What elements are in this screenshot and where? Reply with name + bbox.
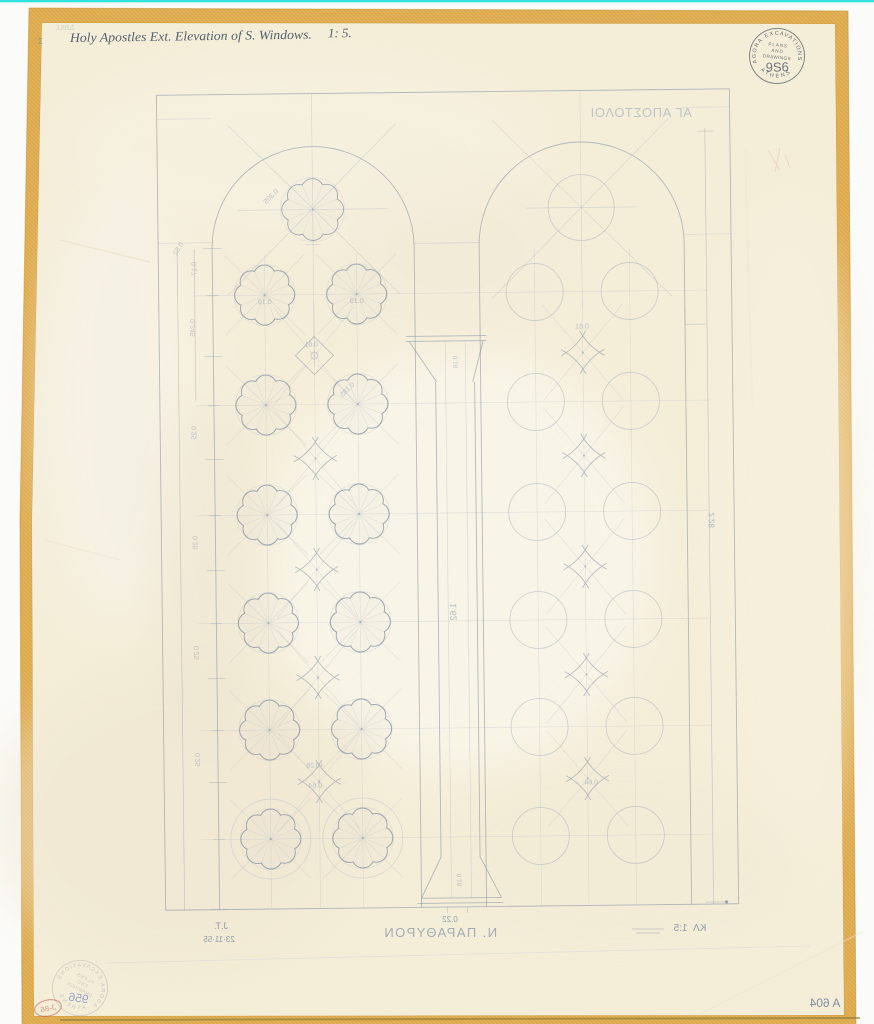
svg-text:0.25: 0.25 bbox=[194, 646, 201, 660]
svg-text:9S6: 9S6 bbox=[765, 59, 788, 74]
svg-text:0.22: 0.22 bbox=[442, 915, 458, 924]
svg-text:23·11·55: 23·11·55 bbox=[203, 935, 235, 944]
svg-text:0.19: 0.19 bbox=[258, 299, 272, 306]
svg-text:ΚΛ 1:5: ΚΛ 1:5 bbox=[673, 923, 706, 934]
svg-text:+0.28: +0.28 bbox=[306, 762, 324, 769]
svg-text:0.25: 0.25 bbox=[192, 536, 199, 550]
svg-text:Ν. ΠΑΡΑΘΥΡΟΝ: Ν. ΠΑΡΑΘΥΡΟΝ bbox=[383, 925, 497, 940]
svg-text:0.61: 0.61 bbox=[304, 341, 318, 348]
svg-text:A 604: A 604 bbox=[809, 996, 840, 1010]
svg-text:0.17: 0.17 bbox=[191, 262, 198, 276]
svg-text:Σ: Σ bbox=[38, 37, 43, 46]
svg-text:0.25: 0.25 bbox=[195, 753, 202, 767]
svg-text:0.64: 0.64 bbox=[308, 782, 322, 789]
svg-text:0.245: 0.245 bbox=[190, 319, 197, 337]
svg-text:J.T.: J.T. bbox=[214, 921, 228, 931]
svg-text:2.28: 2.28 bbox=[707, 512, 716, 528]
svg-text:0.61: 0.61 bbox=[575, 323, 589, 330]
svg-text:1: 5.: 1: 5. bbox=[328, 25, 352, 40]
svg-text:0.16: 0.16 bbox=[452, 356, 459, 369]
svg-text:956: 956 bbox=[67, 990, 89, 1007]
svg-text:1.62: 1.62 bbox=[448, 603, 458, 621]
svg-text:ΑΓ ΑΠΟΣΤΟΛΟΙ: ΑΓ ΑΠΟΣΤΟΛΟΙ bbox=[590, 105, 692, 120]
svg-text:0.64: 0.64 bbox=[584, 779, 598, 786]
svg-text:0.25: 0.25 bbox=[191, 426, 198, 440]
svg-text:0.18: 0.18 bbox=[456, 874, 463, 887]
svg-text:12ΒΔ: 12ΒΔ bbox=[56, 23, 74, 32]
svg-text:0.19: 0.19 bbox=[350, 298, 364, 305]
